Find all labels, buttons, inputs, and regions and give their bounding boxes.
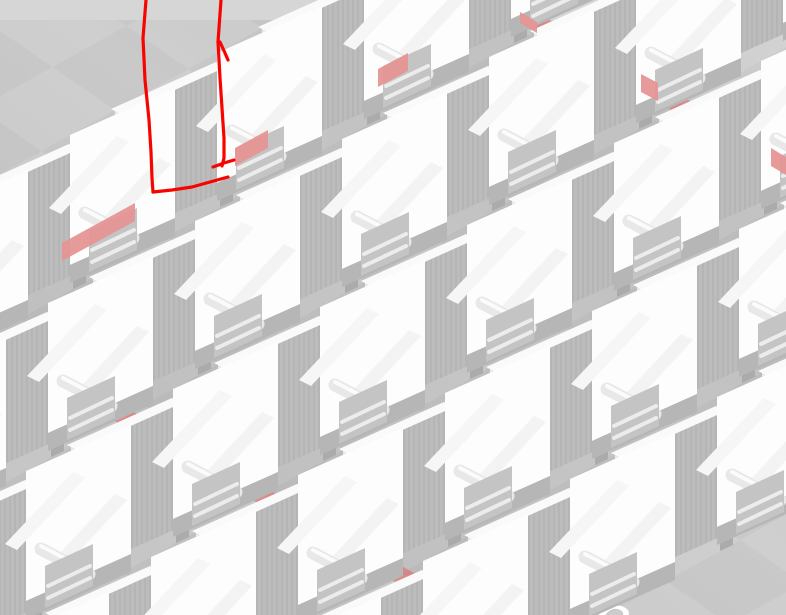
viewport-stage: e mm	[0, 0, 786, 615]
3d-viewport: e mm	[0, 0, 786, 615]
